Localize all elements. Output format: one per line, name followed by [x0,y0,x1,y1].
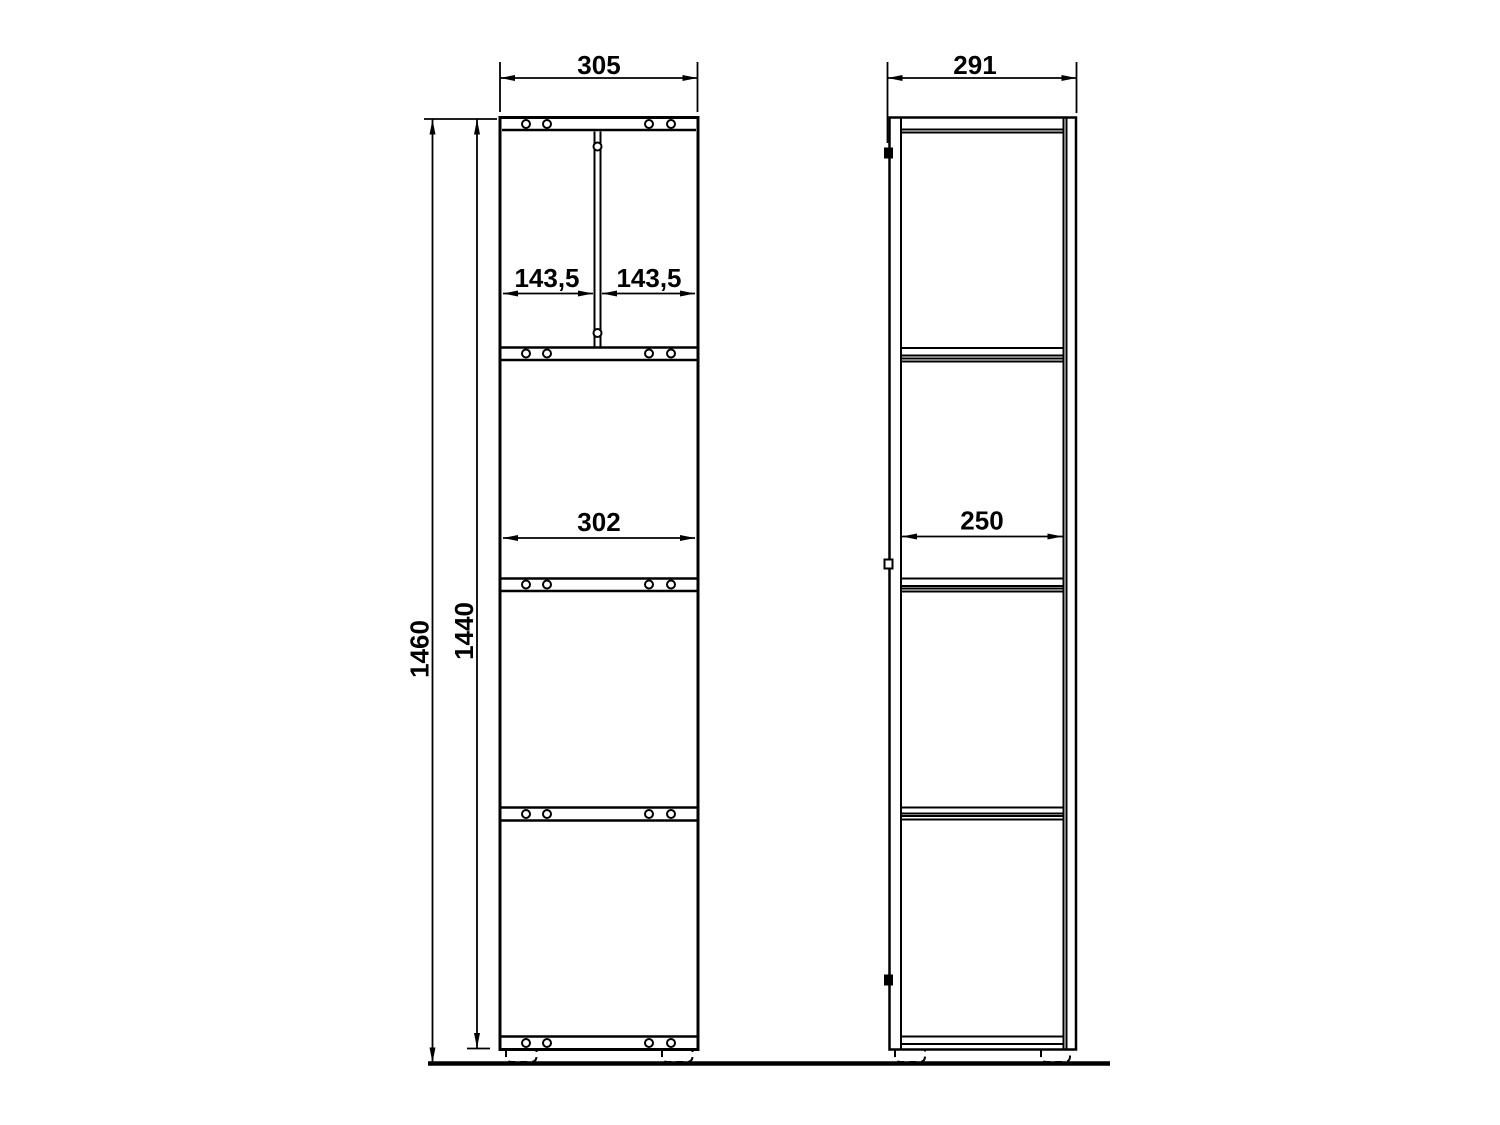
screw-hole [522,1039,530,1047]
screw-hole [543,350,551,358]
dimension-overall-height: 1460 [405,120,435,1063]
screw-hole [667,350,675,358]
screw-hole [667,1039,675,1047]
screw-hole [594,329,602,337]
dimension-label: 143,5 [514,263,579,293]
side-carcass-outline [890,118,1077,1050]
hinge-middle [885,560,893,569]
dimension-top-left-compartment: 143,5 [503,263,593,294]
screw-hole [543,810,551,818]
screw-hole [522,120,530,128]
screw-hole [667,120,675,128]
dimension-interior-width: 302 [503,507,695,538]
screw-hole [543,581,551,589]
hinge-top [885,148,893,158]
hinge-bottom [885,975,893,985]
dimension-top-right-compartment: 143,5 [602,263,695,294]
dimension-interior-depth: 250 [902,506,1063,537]
screw-hole [667,581,675,589]
dimension-label: 305 [577,50,620,80]
dimension-label: 291 [953,50,996,80]
screw-hole [543,1039,551,1047]
screw-hole [522,581,530,589]
dimension-label: 250 [960,506,1003,536]
screw-hole [522,350,530,358]
side-view [885,118,1077,1063]
screw-hole [645,810,653,818]
screw-hole [645,581,653,589]
drawing-canvas: 305 291 143,5 143,5 302 250 [0,0,1500,1125]
dimension-annotations: 305 291 143,5 143,5 302 250 [405,50,1077,1063]
screw-hole [667,810,675,818]
dimension-label: 1460 [405,620,435,678]
front-view [500,118,698,1063]
foot-outline [895,1050,925,1062]
screw-hole [594,143,602,151]
screw-hole [543,120,551,128]
dimension-carcass-height: 1440 [449,120,490,1049]
foot-outline [1041,1050,1070,1062]
dimension-label: 1440 [449,602,479,660]
foot-outline [506,1050,537,1062]
dimension-label: 143,5 [616,263,681,293]
technical-drawing: 305 291 143,5 143,5 302 250 [0,0,1500,1125]
screw-hole [645,350,653,358]
screw-hole [645,1039,653,1047]
foot-outline [662,1050,693,1062]
screw-hole [645,120,653,128]
dimension-front-width: 305 [500,50,698,112]
dimension-label: 302 [577,507,620,537]
screw-hole [522,810,530,818]
